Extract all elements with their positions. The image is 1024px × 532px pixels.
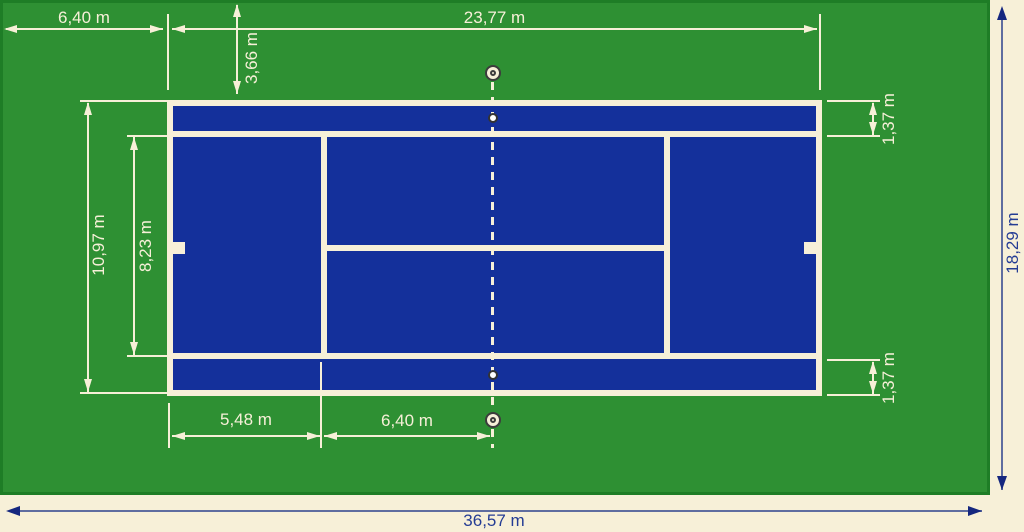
singles-sideline-bottom	[173, 353, 816, 359]
arrowhead-icon	[324, 432, 337, 440]
arrowhead-icon	[869, 361, 877, 374]
arrowhead-icon	[869, 122, 877, 135]
arrowhead-icon	[968, 506, 982, 516]
dim-label: 1,37 m	[880, 348, 898, 408]
extension-line	[80, 100, 167, 102]
extension-line	[827, 135, 880, 137]
dim-label: 6,40 m	[324, 412, 490, 430]
extension-line-left-baseline	[167, 14, 169, 90]
net-center-line-extension	[491, 429, 494, 448]
singles-stick-icon	[488, 370, 498, 380]
dim-label: 6,40 m	[4, 9, 164, 27]
arrowhead-icon	[84, 102, 92, 115]
arrowhead-icon	[130, 137, 138, 150]
center-mark-right	[804, 242, 816, 254]
arrowhead-icon	[84, 379, 92, 392]
dim-label: 18,29 m	[1004, 198, 1022, 288]
arrowhead-icon	[307, 432, 320, 440]
service-line-right	[664, 137, 670, 353]
arrowhead-icon	[172, 432, 185, 440]
arrowhead-icon	[869, 381, 877, 394]
dim-label: 23,77 m	[172, 9, 817, 27]
dim-label: 8,23 m	[137, 201, 155, 291]
net-post-icon	[485, 65, 501, 81]
dim-line	[6, 28, 163, 30]
extension-line-service-line-bottom	[320, 362, 322, 448]
arrowhead-icon	[869, 102, 877, 115]
singles-stick-icon	[488, 113, 498, 123]
extension-line-left-baseline-bottom	[168, 403, 170, 448]
dim-line	[172, 28, 817, 30]
arrowhead-icon	[6, 506, 20, 516]
dim-label: 36,57 m	[294, 512, 694, 530]
dim-label: 3,66 m	[243, 18, 261, 98]
arrowhead-icon	[997, 6, 1007, 20]
center-service-line	[327, 245, 664, 251]
dim-label: 1,37 m	[880, 89, 898, 149]
singles-sideline-top	[173, 131, 816, 137]
tennis-court-diagram: 6,40 m 23,77 m 3,66 m 10,97 m 8,23 m	[0, 0, 1024, 532]
arrowhead-icon	[233, 4, 241, 17]
extension-line	[80, 392, 167, 394]
dim-line	[133, 137, 135, 355]
arrowhead-icon	[233, 81, 241, 94]
arrowhead-icon	[130, 342, 138, 355]
dim-line	[172, 435, 320, 437]
arrowhead-icon	[997, 476, 1007, 490]
center-mark-left	[173, 242, 185, 254]
dim-line	[324, 435, 490, 437]
net-center-line	[491, 82, 494, 412]
extension-line	[127, 355, 167, 357]
extension-line-right-baseline	[819, 14, 821, 90]
extension-line	[827, 394, 880, 396]
arrowhead-icon	[477, 432, 490, 440]
dim-label: 5,48 m	[172, 411, 320, 429]
dim-label: 10,97 m	[90, 190, 108, 300]
